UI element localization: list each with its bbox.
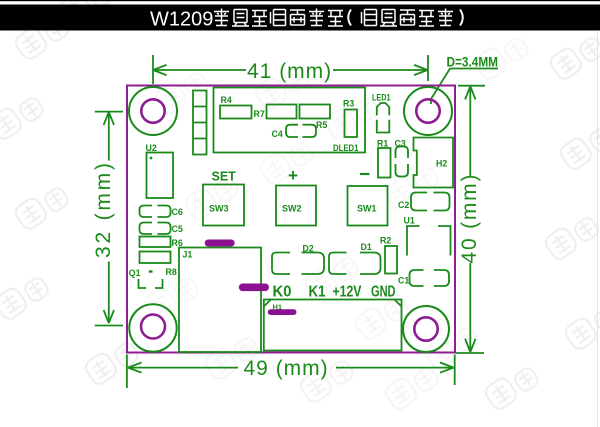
svg-text:D1: D1	[361, 242, 372, 252]
svg-text:SW1: SW1	[357, 204, 377, 214]
svg-text:J1: J1	[183, 250, 193, 260]
svg-text:C5: C5	[172, 224, 183, 234]
svg-text:R8: R8	[166, 267, 177, 277]
svg-text:C1: C1	[398, 276, 409, 286]
svg-text:C4: C4	[272, 129, 283, 139]
svg-text:41 (mm): 41 (mm)	[247, 60, 332, 83]
svg-text:Q1: Q1	[129, 268, 141, 278]
svg-text:SW3: SW3	[209, 204, 229, 214]
svg-text:D=3.4MM: D=3.4MM	[447, 54, 499, 70]
svg-text:+: +	[288, 166, 298, 185]
svg-text:R2: R2	[380, 236, 391, 246]
svg-text:SW2: SW2	[282, 204, 302, 214]
svg-text:C6: C6	[172, 207, 183, 217]
svg-text:DLED1: DLED1	[333, 143, 359, 153]
svg-text:32 (mm): 32 (mm)	[92, 160, 115, 258]
svg-text:R5: R5	[316, 120, 327, 130]
svg-text:C2: C2	[398, 200, 409, 210]
svg-text:H2: H2	[436, 159, 447, 169]
svg-text:LED1: LED1	[372, 93, 391, 103]
svg-text:R3: R3	[343, 99, 354, 109]
svg-text:K0: K0	[273, 284, 292, 301]
svg-text:R6: R6	[172, 238, 183, 248]
svg-text:K1: K1	[309, 284, 326, 301]
svg-text:R1: R1	[377, 139, 388, 149]
svg-text:R7: R7	[254, 109, 265, 119]
svg-text:W1209: W1209	[150, 9, 213, 31]
svg-text:40 (mm): 40 (mm)	[458, 173, 481, 264]
svg-text:GND: GND	[371, 284, 396, 301]
svg-text:U2: U2	[146, 143, 157, 153]
svg-text:SET: SET	[212, 170, 237, 184]
svg-text:R4: R4	[221, 95, 232, 105]
svg-text:U1: U1	[404, 216, 415, 226]
svg-text:49 (mm): 49 (mm)	[244, 357, 329, 380]
svg-text:+12V: +12V	[333, 284, 363, 301]
